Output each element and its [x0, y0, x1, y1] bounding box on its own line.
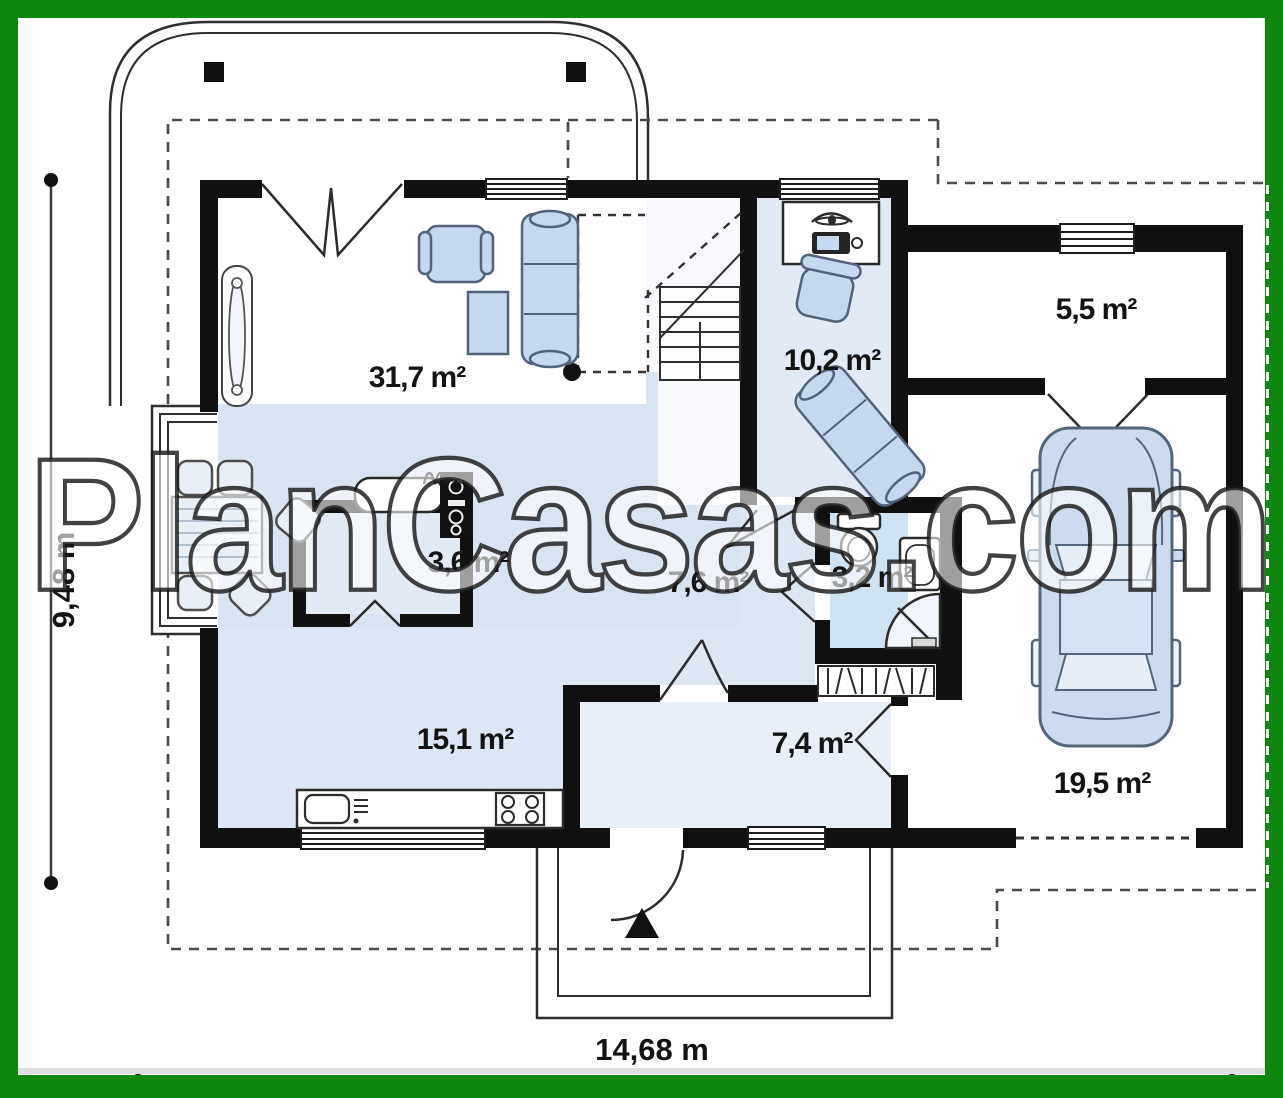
entrance-arrow-icon	[625, 908, 659, 938]
floor-plan-page: 31,7 m² 10,2 m² 5,5 m² 3,6 m² 7,6 m² 3,2…	[0, 0, 1283, 1098]
frame-border-left	[0, 0, 18, 1098]
dining-chair-icon	[178, 461, 212, 495]
frame-border-top	[0, 0, 1283, 18]
room-label-bathroom: 3,2 m²	[832, 561, 913, 595]
dimension-label-horizontal: 14,68 m	[595, 1032, 709, 1068]
terrace-post	[566, 62, 586, 82]
dining-chair-icon	[178, 576, 212, 610]
window-storage	[1060, 224, 1134, 253]
room-label-hall: 7,6 m²	[668, 566, 749, 600]
armchair-icon	[419, 226, 493, 282]
dining-chair-icon	[218, 461, 252, 495]
window-kitchen	[301, 827, 485, 849]
room-label-living: 31,7 m²	[369, 361, 465, 395]
room-label-vestibule: 7,4 m²	[772, 727, 853, 761]
floor-plan-drawing	[0, 0, 1283, 1098]
room-label-garage: 19,5 m²	[1054, 767, 1150, 801]
car-icon	[1028, 428, 1184, 746]
window-office	[780, 179, 879, 199]
toilet-icon	[838, 514, 880, 566]
frame-border-bottom	[0, 1075, 1283, 1098]
room-label-storage: 5,5 m²	[1056, 293, 1137, 327]
coffee-table-icon	[468, 292, 508, 354]
radiator-hatch	[818, 666, 934, 696]
frame-gray-line	[18, 1068, 1265, 1074]
sofa-icon	[522, 211, 578, 367]
window-living-top	[486, 179, 567, 199]
desk-icon	[783, 202, 879, 264]
room-label-pantry: 3,6 m²	[428, 546, 509, 580]
radiator-icon	[222, 266, 252, 406]
dimension-label-vertical: 9,48 m	[46, 532, 82, 629]
dining-table-icon	[172, 497, 262, 573]
window-entrance	[748, 827, 825, 849]
kitchen-counter-bottom	[297, 790, 563, 828]
eaves-dash-on-border	[1266, 185, 1269, 888]
entrance-porch	[537, 848, 892, 1018]
door-entrance-arc	[611, 850, 683, 920]
terrace-post	[204, 62, 224, 82]
room-label-office: 10,2 m²	[784, 344, 880, 378]
room-label-kitchen: 15,1 m²	[417, 723, 513, 757]
cooktop-icon	[496, 793, 544, 825]
